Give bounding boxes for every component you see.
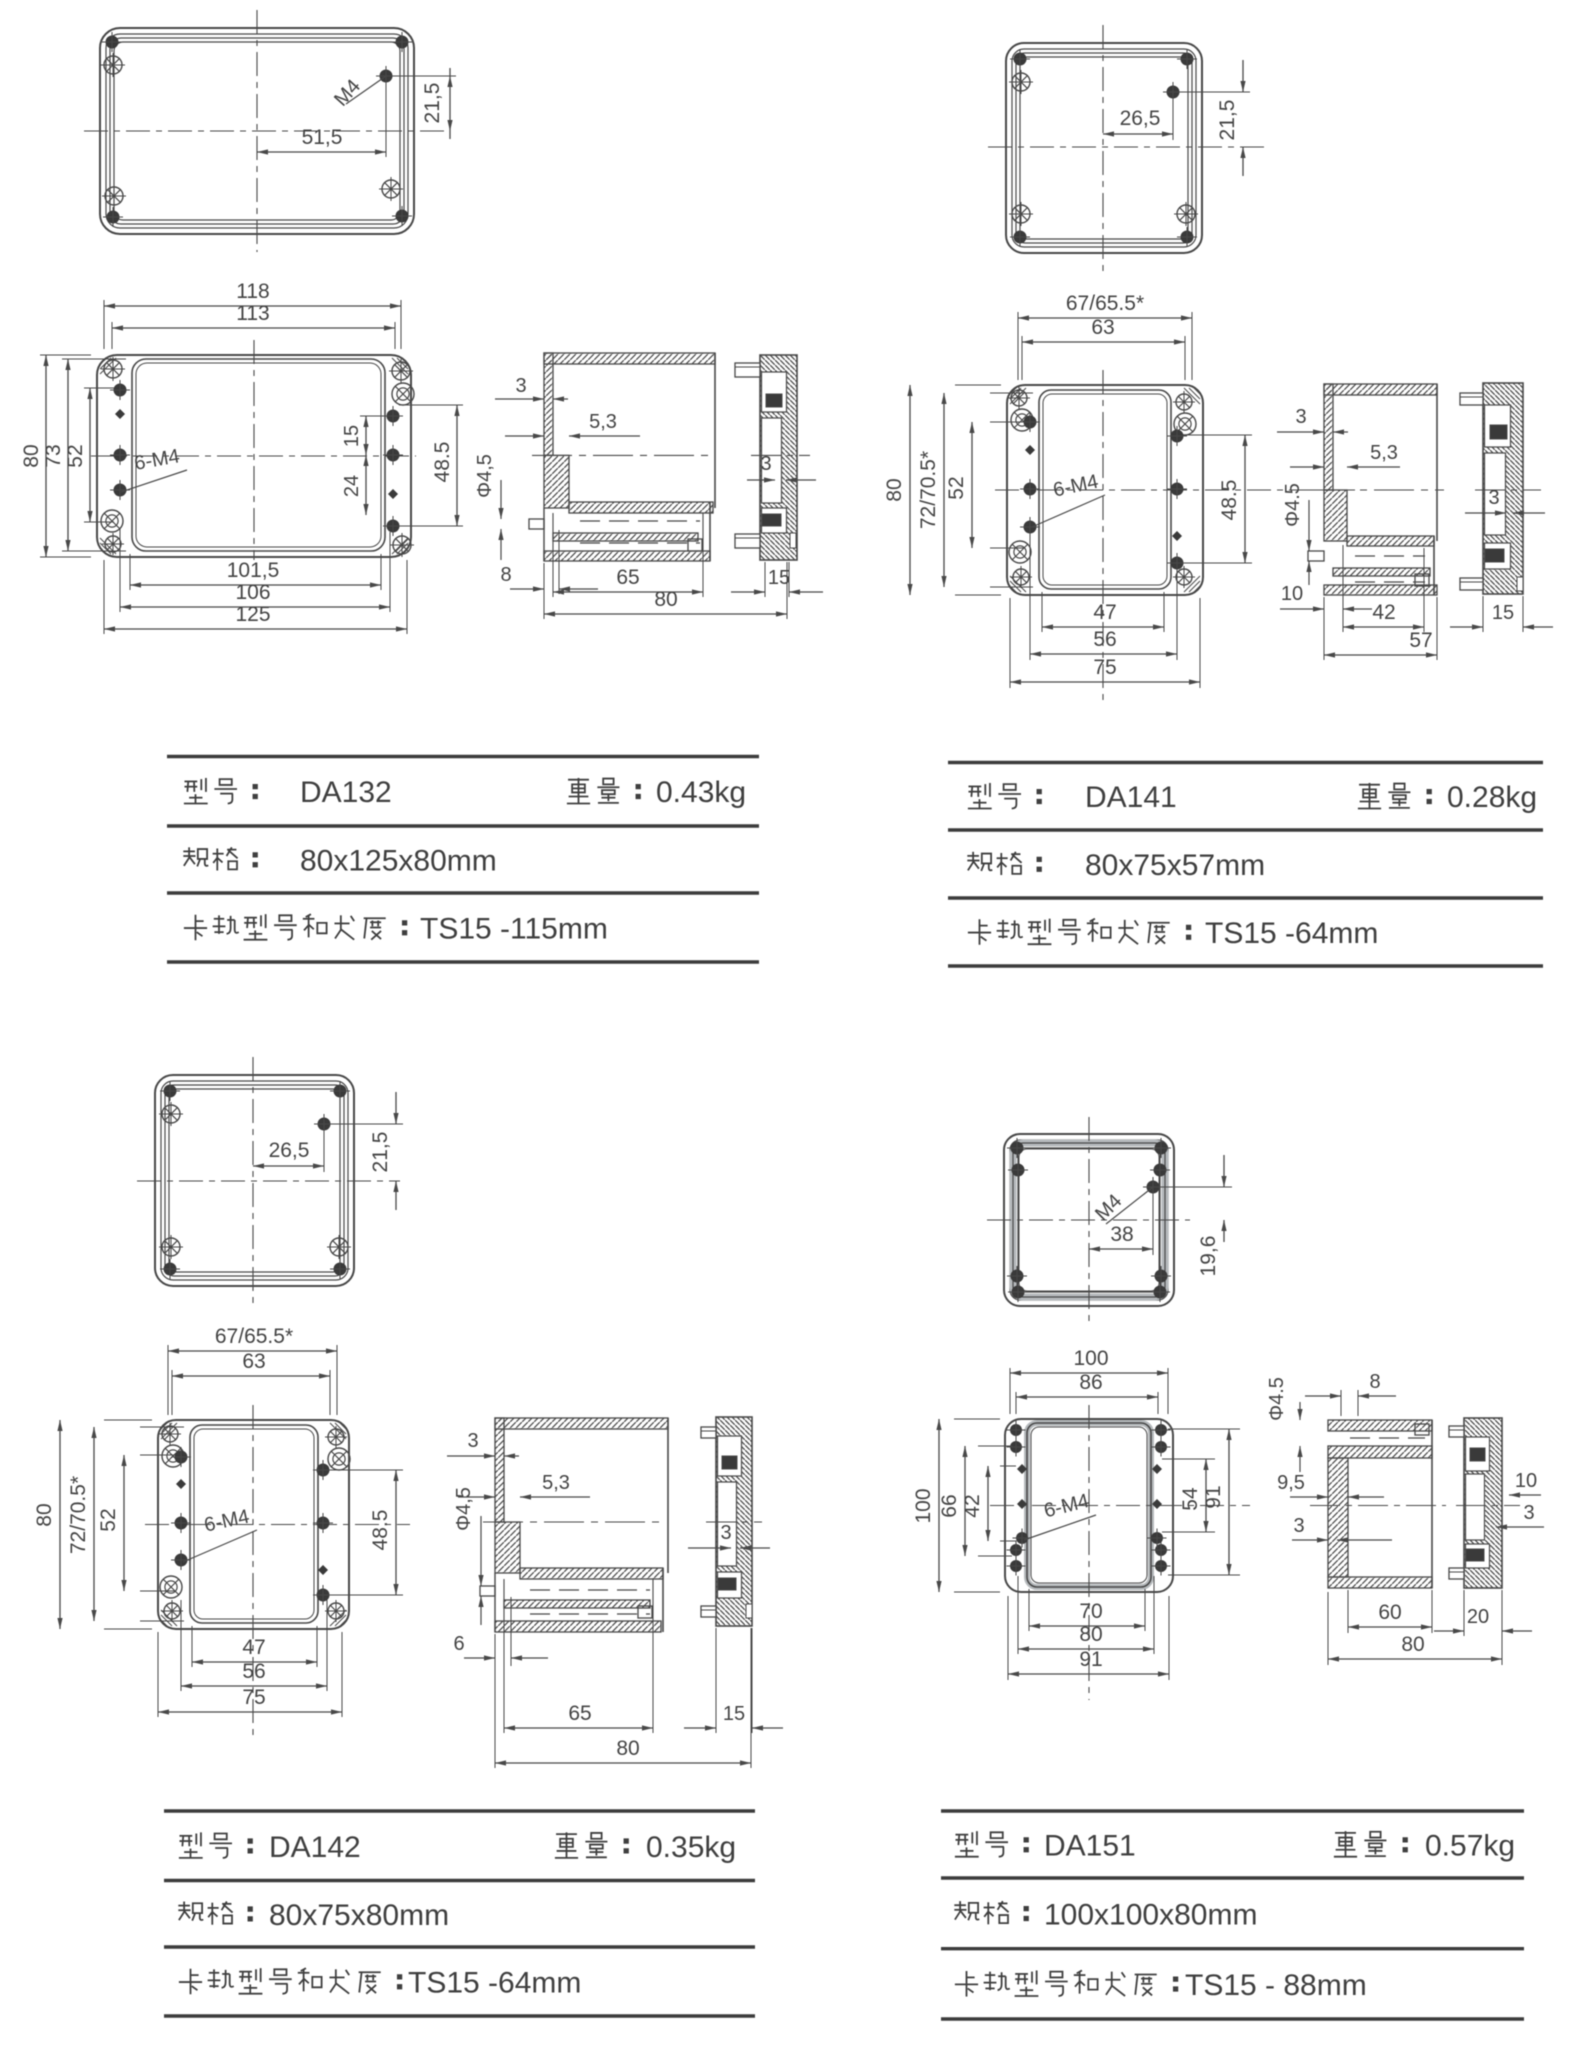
svg-text:0.28kg: 0.28kg — [1447, 781, 1537, 814]
svg-text:48.5: 48.5 — [431, 442, 454, 483]
svg-text:3: 3 — [467, 1430, 478, 1452]
svg-text:42: 42 — [961, 1494, 984, 1517]
svg-text:TS15 - 88mm: TS15 - 88mm — [1185, 1969, 1367, 2002]
svg-text:100x100x80mm: 100x100x80mm — [1044, 1898, 1257, 1931]
svg-text:26,5: 26,5 — [1120, 107, 1161, 130]
svg-text:91: 91 — [1079, 1648, 1102, 1671]
svg-text:113: 113 — [236, 302, 269, 325]
svg-text:80: 80 — [20, 444, 43, 467]
svg-text:80: 80 — [616, 1737, 639, 1760]
svg-text:63: 63 — [1091, 316, 1114, 339]
svg-text:67/65.5*: 67/65.5* — [1066, 292, 1144, 315]
svg-text:6: 6 — [453, 1633, 464, 1655]
svg-text:52: 52 — [64, 444, 87, 467]
svg-text:66: 66 — [938, 1494, 961, 1517]
svg-text:75: 75 — [1093, 656, 1116, 679]
svg-text:3: 3 — [1295, 406, 1306, 428]
svg-text:100: 100 — [912, 1488, 935, 1523]
svg-text:DA151: DA151 — [1044, 1830, 1136, 1863]
svg-text:3: 3 — [1293, 1515, 1304, 1537]
svg-text:20: 20 — [1467, 1606, 1489, 1628]
svg-text:106: 106 — [235, 581, 270, 604]
svg-text:80: 80 — [1079, 1623, 1102, 1646]
svg-text:80: 80 — [654, 588, 677, 611]
svg-text:72/70.5*: 72/70.5* — [67, 1476, 90, 1554]
svg-text:Φ4.5: Φ4.5 — [1266, 1377, 1288, 1421]
svg-text:56: 56 — [242, 1660, 265, 1683]
svg-text:118: 118 — [236, 280, 269, 303]
svg-text:TS15 -115mm: TS15 -115mm — [420, 913, 608, 946]
svg-text:3: 3 — [1523, 1502, 1534, 1524]
svg-text:10: 10 — [1281, 583, 1303, 605]
svg-text:TS15 -64mm: TS15 -64mm — [1205, 917, 1378, 950]
svg-text:Φ4,5: Φ4,5 — [453, 1487, 475, 1531]
svg-text:26,5: 26,5 — [269, 1139, 310, 1162]
svg-text:48.5: 48.5 — [1218, 480, 1241, 521]
svg-text:57: 57 — [1409, 629, 1432, 652]
svg-text:100: 100 — [1073, 1347, 1108, 1370]
svg-text:73: 73 — [42, 444, 65, 467]
svg-text:47: 47 — [1093, 601, 1116, 624]
svg-text:DA141: DA141 — [1085, 781, 1177, 814]
svg-text:3: 3 — [515, 375, 526, 397]
svg-text:52: 52 — [97, 1508, 120, 1531]
svg-text:8: 8 — [500, 564, 511, 586]
svg-text:65: 65 — [616, 566, 639, 589]
svg-text:Φ4.5: Φ4.5 — [1282, 483, 1304, 527]
svg-text:70: 70 — [1079, 1600, 1102, 1623]
svg-text:10: 10 — [1515, 1470, 1537, 1492]
svg-text:80: 80 — [883, 478, 906, 501]
svg-text:3: 3 — [760, 453, 771, 475]
svg-text:21,5: 21,5 — [421, 83, 444, 124]
svg-text:24: 24 — [341, 475, 363, 497]
svg-text:9,5: 9,5 — [1277, 1472, 1305, 1494]
svg-text:0.35kg: 0.35kg — [646, 1831, 736, 1864]
svg-text:21,5: 21,5 — [369, 1132, 392, 1173]
svg-text:38: 38 — [1110, 1223, 1133, 1246]
svg-text:DA142: DA142 — [269, 1831, 361, 1864]
svg-text:Φ4,5: Φ4,5 — [474, 454, 496, 498]
svg-text:51,5: 51,5 — [302, 126, 343, 149]
svg-text:5,3: 5,3 — [542, 1472, 570, 1494]
svg-text:3: 3 — [720, 1522, 731, 1544]
svg-text:125: 125 — [235, 603, 270, 626]
svg-text:21,5: 21,5 — [1216, 100, 1239, 141]
svg-text:0.43kg: 0.43kg — [656, 776, 746, 809]
svg-text:80: 80 — [1401, 1633, 1424, 1656]
svg-text:86: 86 — [1079, 1371, 1102, 1394]
svg-text:TS15 -64mm: TS15 -64mm — [408, 1967, 581, 2000]
svg-text:80x75x57mm: 80x75x57mm — [1085, 849, 1265, 882]
svg-text:52: 52 — [945, 476, 968, 499]
svg-text:19,6: 19,6 — [1197, 1236, 1220, 1277]
svg-text:80x75x80mm: 80x75x80mm — [269, 1899, 449, 1932]
svg-text:80x125x80mm: 80x125x80mm — [300, 845, 497, 878]
svg-text:8: 8 — [1369, 1371, 1380, 1393]
svg-text:3: 3 — [1488, 487, 1499, 509]
svg-text:56: 56 — [1093, 628, 1116, 651]
svg-text:15: 15 — [1492, 602, 1514, 624]
svg-text:5,3: 5,3 — [589, 411, 617, 433]
svg-text:63: 63 — [242, 1350, 265, 1373]
svg-text:15: 15 — [768, 567, 790, 589]
svg-text:60: 60 — [1378, 1601, 1401, 1624]
svg-text:54: 54 — [1179, 1487, 1202, 1511]
svg-text:80: 80 — [33, 1503, 56, 1526]
svg-text:48.5: 48.5 — [369, 1510, 392, 1551]
svg-text:75: 75 — [242, 1686, 265, 1709]
svg-text:101,5: 101,5 — [227, 559, 280, 582]
svg-text:91: 91 — [1202, 1485, 1225, 1508]
svg-text:65: 65 — [568, 1702, 591, 1725]
svg-text:15: 15 — [723, 1703, 745, 1725]
svg-text:72/70.5*: 72/70.5* — [917, 451, 940, 529]
svg-text:15: 15 — [341, 425, 363, 447]
svg-text:5,3: 5,3 — [1370, 442, 1398, 464]
svg-text:0.57kg: 0.57kg — [1425, 1830, 1515, 1863]
svg-text:47: 47 — [242, 1636, 265, 1659]
svg-text:67/65.5*: 67/65.5* — [215, 1325, 293, 1348]
svg-text:DA132: DA132 — [300, 776, 392, 809]
svg-text:42: 42 — [1372, 601, 1395, 624]
